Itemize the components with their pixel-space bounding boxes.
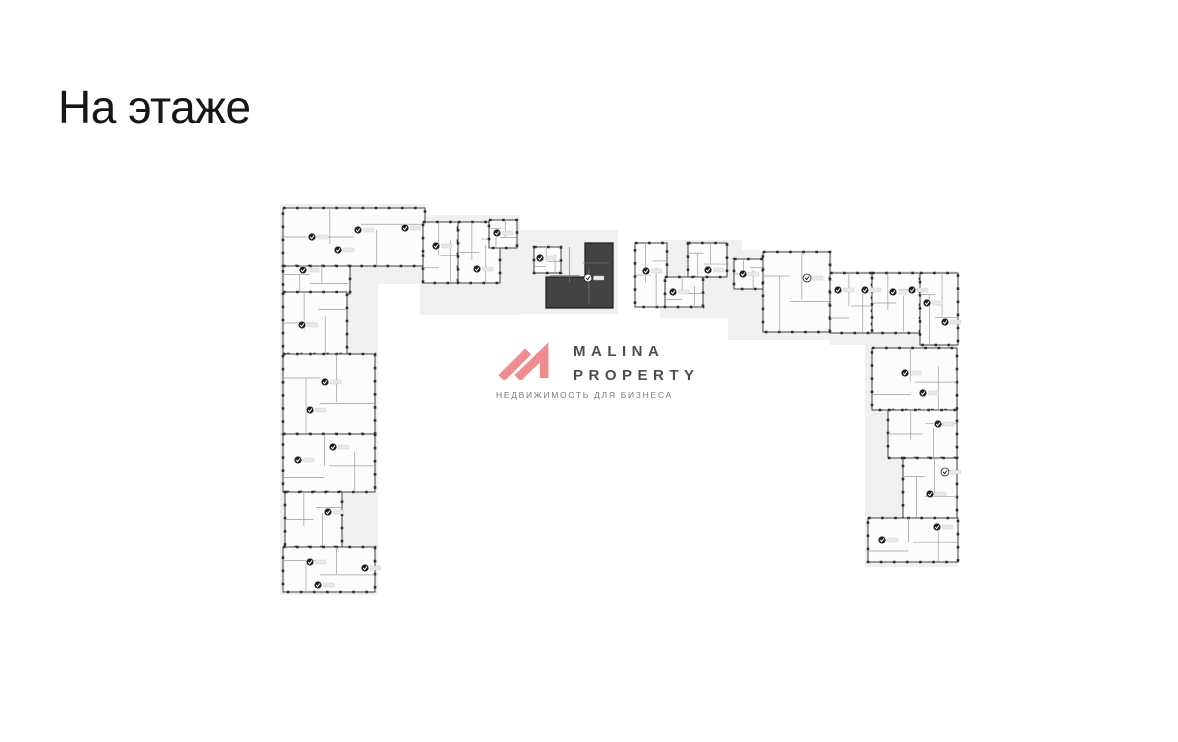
unit-area-label xyxy=(813,276,824,280)
unit-area-label xyxy=(442,244,453,248)
unit-area-label xyxy=(714,268,725,272)
badge-circle-icon xyxy=(878,536,886,544)
unit-block[interactable] xyxy=(635,243,667,307)
logo-line2: PROPERTY xyxy=(573,368,700,383)
badge-circle-icon xyxy=(306,406,314,414)
badge-circle-icon xyxy=(934,420,942,428)
unit-outline xyxy=(423,222,458,283)
unit-area-label xyxy=(339,445,350,449)
badge-circle-icon xyxy=(299,266,307,274)
unit-area-label xyxy=(316,408,327,412)
unit-area-label xyxy=(652,269,663,273)
badge-circle-icon xyxy=(306,558,314,566)
badge-circle-icon xyxy=(432,242,440,250)
unit-area-label xyxy=(308,323,319,327)
badge-circle-icon xyxy=(739,270,747,278)
badge-circle-icon xyxy=(923,299,931,307)
unit-area-label xyxy=(951,320,962,324)
unit-block[interactable] xyxy=(283,208,425,266)
badge-circle-icon xyxy=(294,456,302,464)
badge-circle-icon xyxy=(704,266,712,274)
unit-outline xyxy=(830,273,872,333)
unit-block[interactable] xyxy=(920,273,958,345)
unit-area-label xyxy=(936,492,947,496)
badge-circle-icon xyxy=(901,369,909,377)
unit-outline xyxy=(283,354,375,434)
badge-circle-icon xyxy=(919,389,927,397)
badge-circle-icon xyxy=(834,286,842,294)
unit-outline xyxy=(872,348,957,410)
badge-circle-icon xyxy=(861,286,869,294)
badge-circle-icon xyxy=(536,254,544,262)
unit-area-label xyxy=(951,470,962,474)
badge-circle-icon xyxy=(401,224,409,232)
brand-logo: MALINA PROPERTY НЕДВИЖИМОСТЬ ДЛЯ БИЗНЕСА xyxy=(496,342,700,400)
badge-circle-icon xyxy=(324,508,332,516)
unit-area-label xyxy=(929,391,940,395)
badge-circle-icon xyxy=(584,274,592,282)
unit-area-label xyxy=(371,566,382,570)
logo-line1: MALINA xyxy=(573,344,700,359)
unit-area-label xyxy=(888,538,899,542)
logo-tagline: НЕДВИЖИМОСТЬ ДЛЯ БИЗНЕСА xyxy=(496,390,700,400)
badge-circle-icon xyxy=(361,564,369,572)
unit-area-label xyxy=(933,301,944,305)
unit-area-label xyxy=(304,458,315,462)
unit-area-label xyxy=(364,228,375,232)
unit-area-label xyxy=(334,510,345,514)
unit-outline xyxy=(763,252,830,332)
unit-area-label xyxy=(503,231,514,235)
unit-area-label xyxy=(411,226,422,230)
logo-words: MALINA PROPERTY xyxy=(573,342,700,383)
unit-block[interactable] xyxy=(830,273,872,333)
page-title: На этаже xyxy=(58,84,251,130)
badge-circle-icon xyxy=(941,318,949,326)
unit-outline xyxy=(920,273,958,345)
badge-circle-icon xyxy=(354,226,362,234)
unit-block[interactable] xyxy=(283,354,375,434)
unit-block[interactable] xyxy=(763,252,830,332)
unit-area-label xyxy=(344,248,355,252)
logo-mark-icon xyxy=(496,342,560,380)
badge-circle-icon xyxy=(803,274,811,282)
badge-circle-icon xyxy=(298,321,306,329)
unit-outline xyxy=(903,458,957,520)
badge-circle-icon xyxy=(669,288,677,296)
unit-area-label xyxy=(316,560,327,564)
unit-block[interactable] xyxy=(872,273,920,333)
unit-block[interactable] xyxy=(423,222,458,283)
unit-block[interactable] xyxy=(285,492,342,547)
unit-area-label xyxy=(944,422,955,426)
badge-circle-icon xyxy=(334,246,342,254)
badge-circle-icon xyxy=(933,523,941,531)
unit-area-label xyxy=(594,276,605,280)
logo-row: MALINA PROPERTY xyxy=(496,342,700,383)
unit-block[interactable] xyxy=(903,458,957,520)
unit-area-label xyxy=(318,235,329,239)
badge-circle-icon xyxy=(493,229,501,237)
unit-area-label xyxy=(324,583,335,587)
unit-area-label xyxy=(483,267,494,271)
unit-block[interactable] xyxy=(872,348,957,410)
unit-area-label xyxy=(331,380,342,384)
unit-block[interactable] xyxy=(888,410,957,458)
badge-circle-icon xyxy=(941,468,949,476)
badge-circle-icon xyxy=(908,286,916,294)
unit-area-label xyxy=(679,290,690,294)
unit-area-label xyxy=(844,288,855,292)
unit-area-label xyxy=(899,290,910,294)
unit-area-label xyxy=(918,288,929,292)
badge-circle-icon xyxy=(308,233,316,241)
badge-circle-icon xyxy=(642,267,650,275)
floorplan-svg xyxy=(270,192,965,617)
badge-circle-icon xyxy=(889,288,897,296)
unit-area-label xyxy=(749,272,760,276)
badge-circle-icon xyxy=(926,490,934,498)
unit-area-label xyxy=(871,288,882,292)
badge-circle-icon xyxy=(321,378,329,386)
badge-circle-icon xyxy=(473,265,481,273)
badge-circle-icon xyxy=(329,443,337,451)
badge-circle-icon xyxy=(314,581,322,589)
unit-area-label xyxy=(309,268,320,272)
unit-area-label xyxy=(546,256,557,260)
unit-area-label xyxy=(911,371,922,375)
unit-area-label xyxy=(943,525,954,529)
